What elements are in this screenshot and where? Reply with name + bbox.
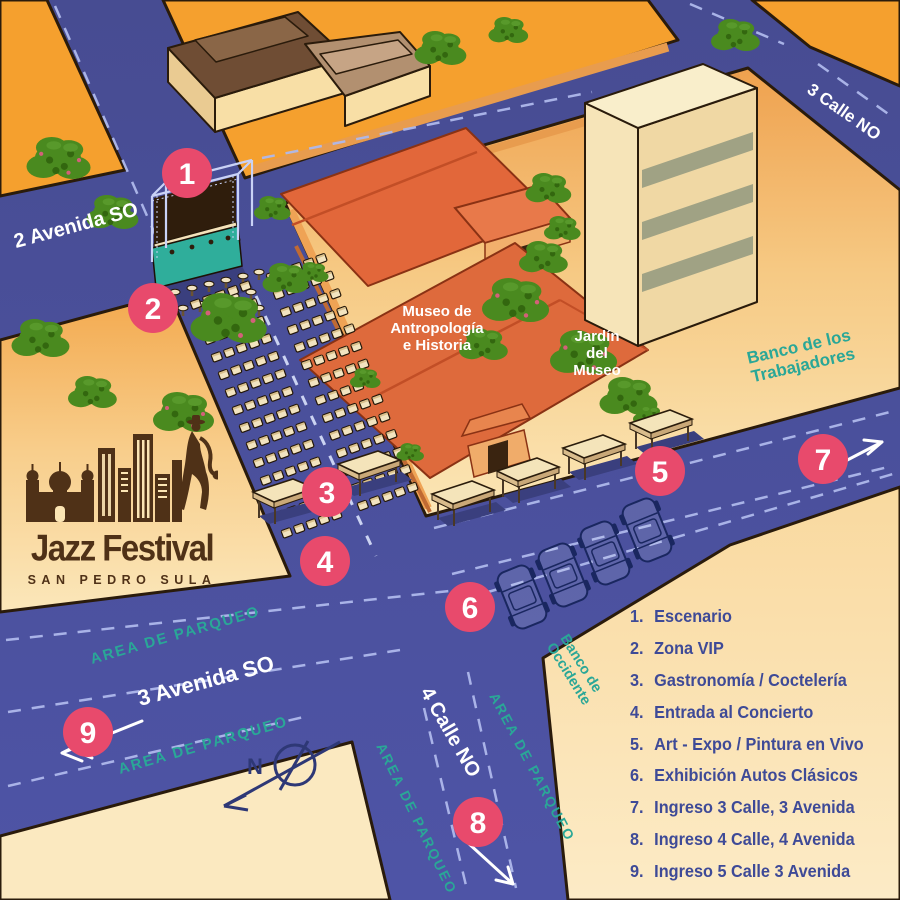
legend-item: 4.Entrada al Concierto — [630, 696, 900, 728]
legend-item-label: Art - Expo / Pintura en Vivo — [654, 734, 864, 755]
event-map: N 2 Avenida SO 3 Calle NO 3 Avenida SO 4… — [0, 0, 900, 900]
svg-text:Museo de: Museo de — [402, 303, 471, 320]
map-marker-2: 2 — [128, 283, 178, 333]
legend-item-number: 6. — [630, 765, 649, 786]
map-marker-9: 9 — [63, 707, 113, 757]
marker-number: 8 — [470, 807, 487, 840]
map-marker-6: 6 — [445, 582, 495, 632]
svg-text:del: del — [586, 345, 608, 362]
compass-north-label: N — [247, 754, 263, 779]
map-marker-8: 8 — [453, 797, 503, 847]
legend-item-number: 3. — [630, 670, 649, 691]
legend-item-label: Escenario — [654, 606, 732, 627]
legend-item-label: Entrada al Concierto — [654, 702, 813, 723]
legend-item: 8.Ingreso 4 Calle, 4 Avenida — [630, 824, 900, 856]
legend-item: 2.Zona VIP — [630, 633, 900, 665]
map-marker-7: 7 — [798, 434, 848, 484]
legend-item-number: 4. — [630, 702, 649, 723]
legend-item: 6.Exhibición Autos Clásicos — [630, 760, 900, 792]
legend-item-number: 2. — [630, 638, 649, 659]
legend: 1.Escenario2.Zona VIP3.Gastronomía / Coc… — [630, 601, 900, 887]
legend-item: 1.Escenario — [630, 601, 900, 633]
bank-tower-building — [585, 64, 757, 346]
marker-number: 9 — [80, 717, 97, 750]
svg-text:e Historia: e Historia — [403, 337, 472, 354]
legend-item: 3.Gastronomía / Coctelería — [630, 665, 900, 697]
svg-text:Antropología: Antropología — [390, 320, 484, 337]
legend-item: 9.Ingreso 5 Calle 3 Avenida — [630, 855, 900, 887]
legend-item-number: 5. — [630, 734, 649, 755]
museum-label: Museo de Antropología e Historia — [390, 303, 484, 354]
legend-item: 7.Ingreso 3 Calle, 3 Avenida — [630, 792, 900, 824]
marker-number: 4 — [317, 546, 334, 579]
map-marker-1: 1 — [162, 148, 212, 198]
marker-number: 7 — [815, 444, 832, 477]
legend-item-label: Gastronomía / Coctelería — [654, 670, 847, 691]
marker-number: 6 — [462, 592, 479, 625]
svg-text:Jardín: Jardín — [574, 328, 619, 345]
logo-skyline-icon — [26, 412, 218, 522]
legend-item-number: 7. — [630, 797, 649, 818]
svg-text:Museo: Museo — [573, 362, 621, 379]
map-marker-4: 4 — [300, 536, 350, 586]
map-marker-5: 5 — [635, 446, 685, 496]
logo-title: Jazz Festival — [26, 527, 218, 570]
legend-item-number: 9. — [630, 861, 649, 882]
marker-number: 2 — [145, 293, 162, 326]
legend-item: 5.Art - Expo / Pintura en Vivo — [630, 728, 900, 760]
legend-item-label: Ingreso 4 Calle, 4 Avenida — [654, 829, 855, 850]
marker-number: 1 — [179, 158, 196, 191]
legend-item-label: Ingreso 3 Calle, 3 Avenida — [654, 797, 855, 818]
legend-item-number: 8. — [630, 829, 649, 850]
legend-item-number: 1. — [630, 606, 649, 627]
legend-item-label: Ingreso 5 Calle 3 Avenida — [654, 861, 850, 882]
logo-subtitle: SAN PEDRO SULA — [26, 573, 218, 587]
marker-number: 5 — [652, 456, 669, 489]
marker-number: 3 — [319, 477, 336, 510]
map-marker-3: 3 — [302, 467, 352, 517]
legend-item-label: Exhibición Autos Clásicos — [654, 765, 858, 786]
legend-item-label: Zona VIP — [654, 638, 724, 659]
festival-logo: Jazz Festival SAN PEDRO SULA — [26, 412, 218, 587]
